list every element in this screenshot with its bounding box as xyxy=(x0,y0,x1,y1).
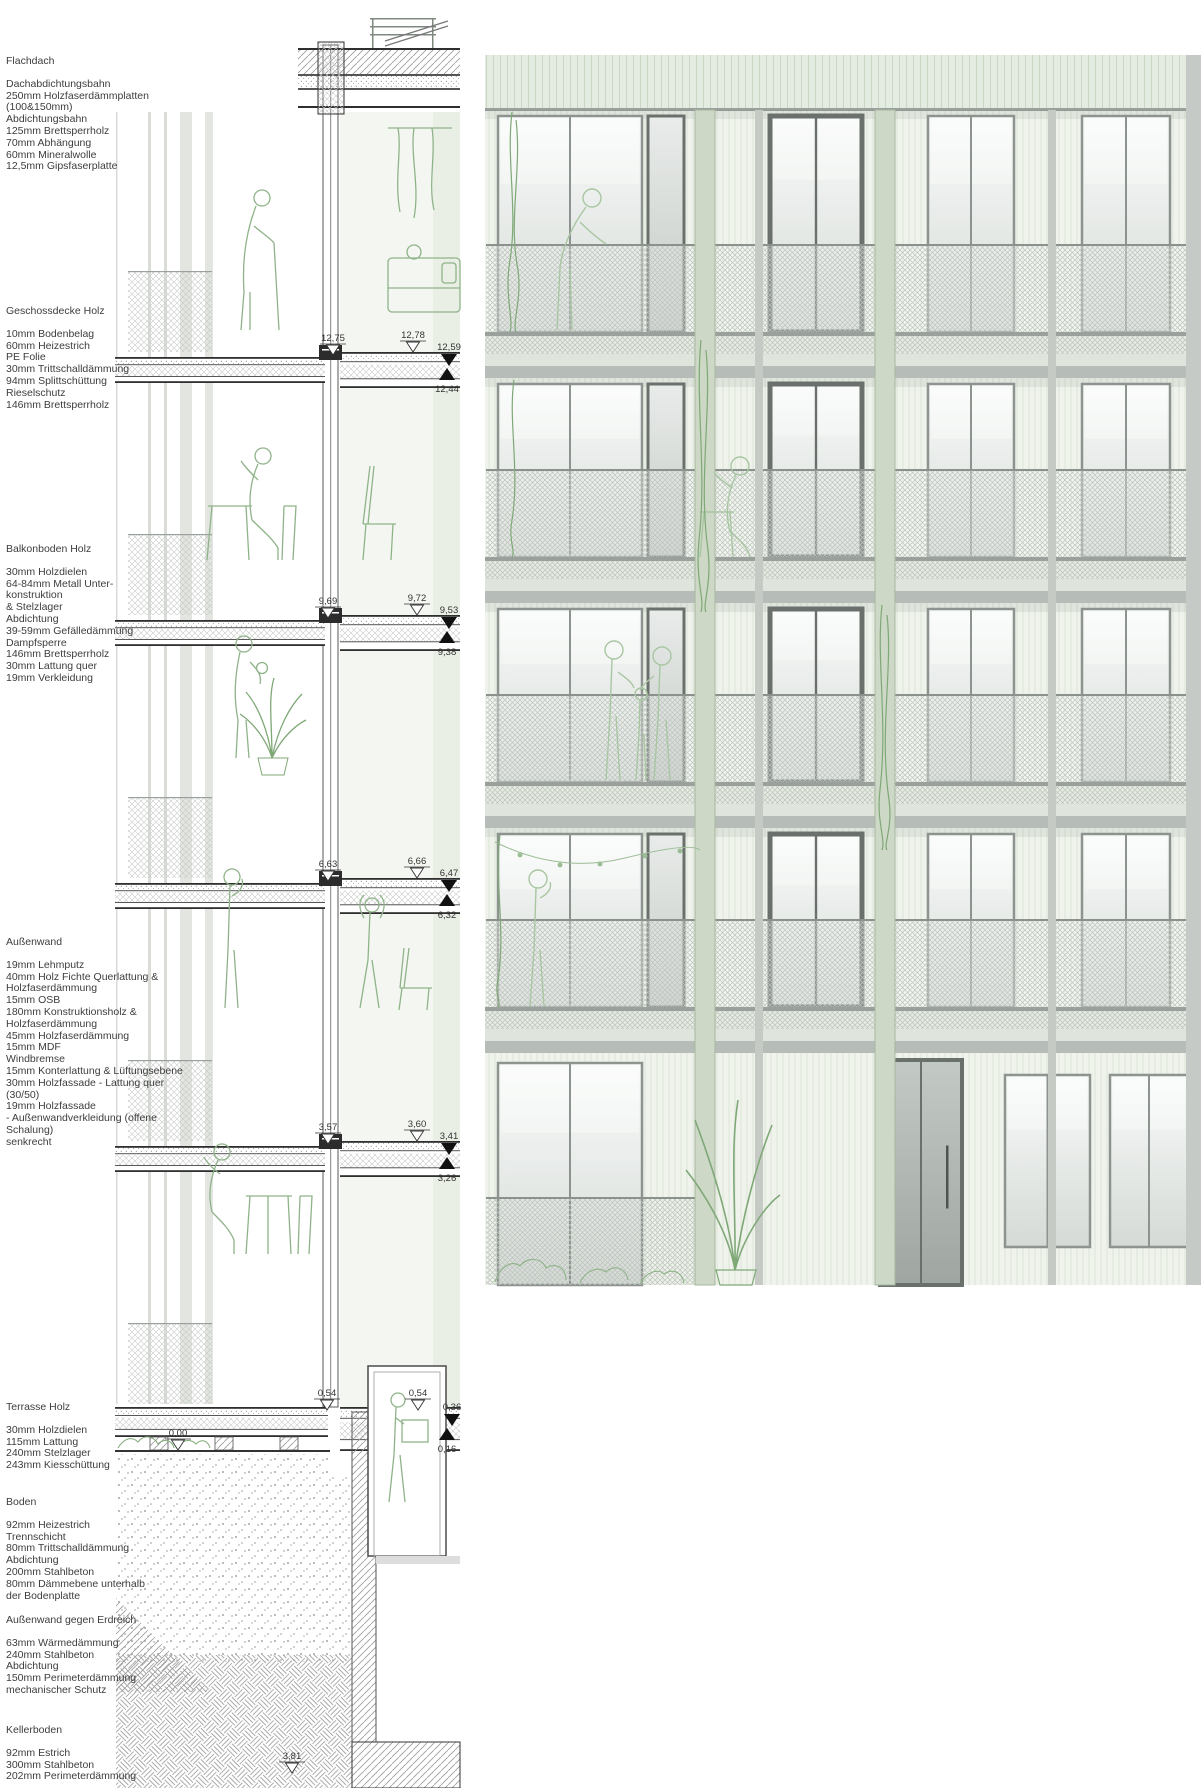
annotation-block: FlachdachDachabdichtungsbahn 250mm Holzf… xyxy=(6,56,186,173)
annotation-title: Terrasse Holz xyxy=(6,1402,186,1414)
annotation-lines: 10mm Bodenbelag 60mm Heizestrich PE Foli… xyxy=(6,329,186,412)
svg-text:12,44: 12,44 xyxy=(435,384,459,395)
svg-text:6,63: 6,63 xyxy=(319,859,338,870)
section-plant xyxy=(240,678,306,775)
annotation-title: Kellerboden xyxy=(6,1725,186,1737)
annotation-block: Kellerboden92mm Estrich 300mm Stahlbeton… xyxy=(6,1725,186,1783)
annotation-block: Außenwand gegen Erdreich63mm Wärmedämmun… xyxy=(6,1615,186,1697)
facade-elevation xyxy=(485,55,1201,1285)
annotation-lines: 92mm Estrich 300mm Stahlbeton 202mm Peri… xyxy=(6,1748,186,1783)
svg-text:3,60: 3,60 xyxy=(408,1119,427,1130)
annotation-block: Balkonboden Holz30mm Holzdielen 64-84mm … xyxy=(6,544,186,685)
parapet xyxy=(318,42,344,114)
architectural-sheet: 12,7512,7812,5912,449,699,729,539,386,63… xyxy=(0,0,1201,1788)
svg-text:9,72: 9,72 xyxy=(408,593,427,604)
annotation-lines: Dachabdichtungsbahn 250mm Holzfaserdämmp… xyxy=(6,79,186,173)
annotation-lines: 30mm Holzdielen 115mm Lattung 240mm Stel… xyxy=(6,1425,186,1472)
svg-text:9,53: 9,53 xyxy=(440,605,459,616)
svg-text:9,69: 9,69 xyxy=(319,596,338,607)
annotation-title: Boden xyxy=(6,1497,186,1509)
annotation-title: Flachdach xyxy=(6,56,186,68)
basement-floor-slab xyxy=(352,1742,460,1788)
annotation-block: Geschossdecke Holz10mm Bodenbelag 60mm H… xyxy=(6,306,186,411)
svg-text:6,32: 6,32 xyxy=(438,910,457,921)
section-person-child xyxy=(235,636,267,758)
svg-text:0,54: 0,54 xyxy=(318,1388,337,1399)
layer-annotations: FlachdachDachabdichtungsbahn 250mm Holzf… xyxy=(0,0,200,1788)
annotation-lines: 92mm Heizestrich Trennschicht 80mm Tritt… xyxy=(6,1520,186,1603)
svg-text:0,54: 0,54 xyxy=(409,1388,428,1399)
annotation-lines: 30mm Holzdielen 64-84mm Metall Unter- ko… xyxy=(6,567,186,685)
svg-text:0,36: 0,36 xyxy=(443,1402,462,1413)
annotation-block: Boden92mm Heizestrich Trennschicht 80mm … xyxy=(6,1497,186,1602)
annotation-title: Außenwand xyxy=(6,937,186,949)
basement-door xyxy=(368,1366,446,1556)
svg-text:3,57: 3,57 xyxy=(319,1122,338,1133)
svg-text:3,81: 3,81 xyxy=(283,1751,302,1762)
roof-railing xyxy=(370,18,448,48)
annotation-block: Außenwand19mm Lehmputz 40mm Holz Fichte … xyxy=(6,937,186,1149)
annotation-title: Geschossdecke Holz xyxy=(6,306,186,318)
svg-text:12,59: 12,59 xyxy=(437,342,461,353)
svg-text:0,16: 0,16 xyxy=(438,1444,457,1455)
annotation-lines: 19mm Lehmputz 40mm Holz Fichte Querlattu… xyxy=(6,960,186,1149)
annotation-title: Balkonboden Holz xyxy=(6,544,186,556)
annotation-block: Terrasse Holz30mm Holzdielen 115mm Lattu… xyxy=(6,1402,186,1472)
annotation-title: Außenwand gegen Erdreich xyxy=(6,1615,186,1627)
section-person-table xyxy=(207,448,296,560)
svg-text:6,47: 6,47 xyxy=(440,868,459,879)
svg-text:3,41: 3,41 xyxy=(440,1131,459,1142)
section-person-cane xyxy=(241,190,279,330)
svg-text:12,78: 12,78 xyxy=(401,330,425,341)
svg-text:9,38: 9,38 xyxy=(438,647,457,658)
svg-text:3,26: 3,26 xyxy=(438,1173,457,1184)
annotation-lines: 63mm Wärmedämmung 240mm Stahlbeton Abdic… xyxy=(6,1638,186,1697)
svg-text:6,66: 6,66 xyxy=(408,856,427,867)
svg-text:12,75: 12,75 xyxy=(321,333,345,344)
